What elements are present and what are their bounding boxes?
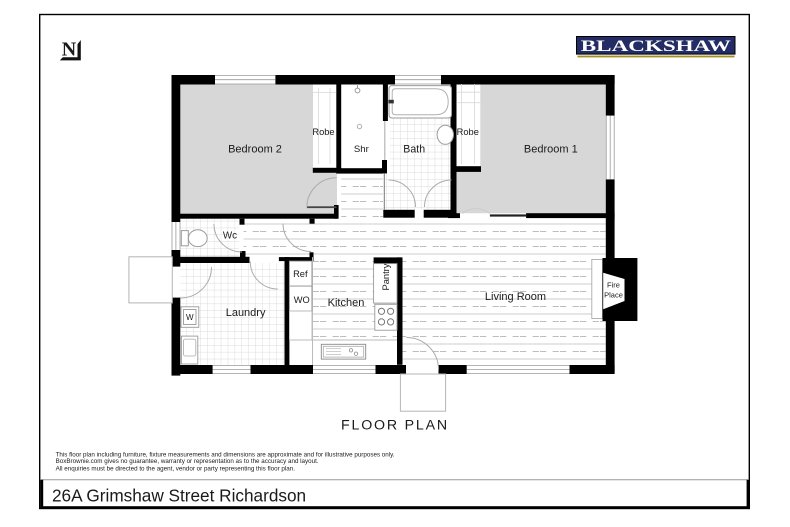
svg-text:All enquiries must be directed: All enquiries must be directed to the ag… xyxy=(56,465,296,472)
svg-text:W: W xyxy=(186,313,194,322)
svg-text:BLACKSHAW: BLACKSHAW xyxy=(581,38,732,55)
svg-text:Laundry: Laundry xyxy=(226,307,266,319)
svg-text:FLOOR PLAN: FLOOR PLAN xyxy=(341,418,449,434)
svg-text:26A Grimshaw Street Richardson: 26A Grimshaw Street Richardson xyxy=(52,485,306,505)
svg-text:Place: Place xyxy=(604,291,623,300)
svg-text:Bath: Bath xyxy=(403,143,425,155)
svg-text:Kitchen: Kitchen xyxy=(328,297,365,309)
svg-text:Pantry: Pantry xyxy=(381,263,391,290)
svg-text:Wc: Wc xyxy=(223,231,237,242)
svg-text:Living Room: Living Room xyxy=(485,291,546,303)
svg-text:Robe: Robe xyxy=(312,127,334,137)
svg-text:Robe: Robe xyxy=(457,127,479,137)
svg-text:WO: WO xyxy=(294,295,310,305)
svg-text:BoxBrownie.com gives no guaran: BoxBrownie.com gives no guarantee, warra… xyxy=(56,458,319,465)
svg-text:Ref: Ref xyxy=(293,269,308,279)
svg-text:Bedroom 1: Bedroom 1 xyxy=(524,143,578,155)
svg-text:Fire: Fire xyxy=(607,281,620,290)
svg-text:Shr: Shr xyxy=(354,144,370,155)
svg-text:N: N xyxy=(62,38,77,60)
svg-text:Bedroom 2: Bedroom 2 xyxy=(228,143,282,155)
